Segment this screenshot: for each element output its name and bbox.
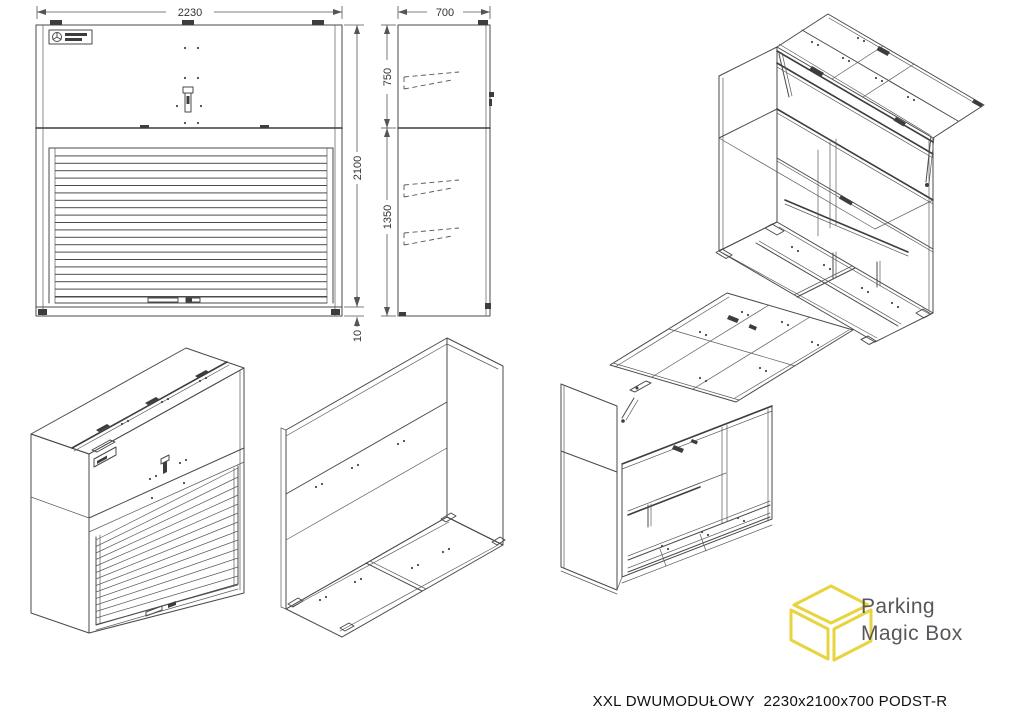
hidden-shelf-low <box>404 228 459 245</box>
dim-side-bottom-module-label: 1350 <box>382 205 394 229</box>
front-lock-handle-icon <box>183 87 193 112</box>
dim-front-width-label: 2230 <box>178 7 202 19</box>
front-view: 2230 <box>36 6 364 342</box>
lid-logo-plate-icon <box>630 381 651 392</box>
drawing-sheet: 2230 <box>0 0 1024 723</box>
brand-name-line1: Parking <box>861 595 935 618</box>
dim-side-depth-label: 700 <box>436 7 454 19</box>
brand-cube-icon <box>791 586 871 660</box>
iso-roller-shutter <box>96 466 238 630</box>
gas-strut-icon <box>621 398 638 423</box>
iso-shell-view <box>281 338 505 637</box>
dim-front-height-label: 2100 <box>352 156 364 180</box>
iso-open-top-view <box>716 14 984 345</box>
roller-shutter <box>49 148 333 303</box>
side-handle-icon <box>489 92 494 97</box>
iso-closed-view <box>31 348 244 633</box>
technical-drawing: 2230 <box>0 0 1024 723</box>
open-lid-panel <box>777 14 984 138</box>
hidden-shelf-top <box>404 72 459 89</box>
side-view: 700 750 1350 <box>381 6 494 316</box>
brand-logo: Parking Magic Box <box>791 586 963 660</box>
brand-name-line2: Magic Box <box>861 622 963 645</box>
folded-lid-panel <box>610 293 853 402</box>
hidden-shelf-mid <box>404 180 459 197</box>
dim-front-base-label: 10 <box>352 330 364 342</box>
sheet-caption: XXL DWUMODUŁOWY 2230x2100x700 PODST-R <box>593 693 948 710</box>
iso-half-open-view <box>561 293 853 594</box>
dim-side-top-module-label: 750 <box>382 68 394 86</box>
front-logo-plate-icon <box>49 30 92 44</box>
gas-strut-icon <box>779 53 983 187</box>
